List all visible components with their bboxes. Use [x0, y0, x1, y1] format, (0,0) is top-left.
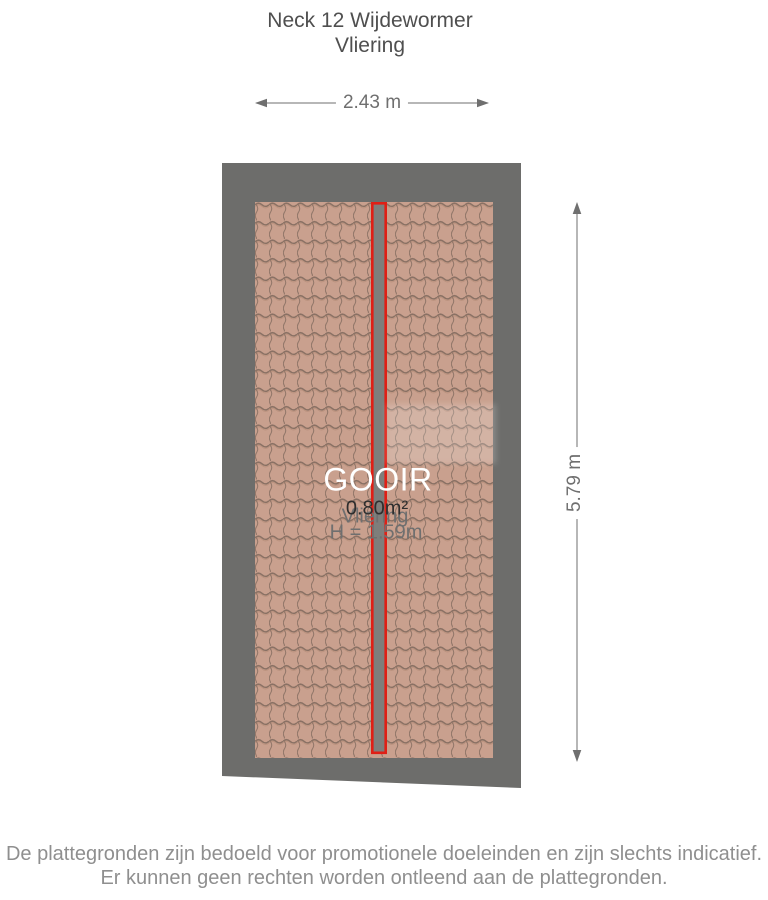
- floorplan-drawing: [0, 0, 768, 900]
- arrow-down-icon: [573, 750, 582, 762]
- disclaimer: De plattegronden zijn bedoeld voor promo…: [0, 842, 768, 890]
- arrow-up-icon: [573, 202, 582, 214]
- room-area-label: 0.80m²: [346, 498, 408, 521]
- height-dimension-label: 5.79 m: [564, 447, 586, 519]
- room-ceiling-height-label: H = 1.59m: [330, 522, 423, 545]
- arrow-right-icon: [477, 99, 489, 108]
- floorplan-page: Neck 12 Wijdewormer Vliering: [0, 0, 768, 900]
- width-dimension-label: 2.43 m: [336, 92, 408, 114]
- watermark-light-patch: [386, 404, 496, 464]
- arrow-left-icon: [255, 99, 267, 108]
- disclaimer-line-1: De plattegronden zijn bedoeld voor promo…: [0, 842, 768, 866]
- disclaimer-line-2: Er kunnen geen rechten worden ontleend a…: [0, 866, 768, 890]
- agency-watermark: GOOIR: [323, 462, 432, 499]
